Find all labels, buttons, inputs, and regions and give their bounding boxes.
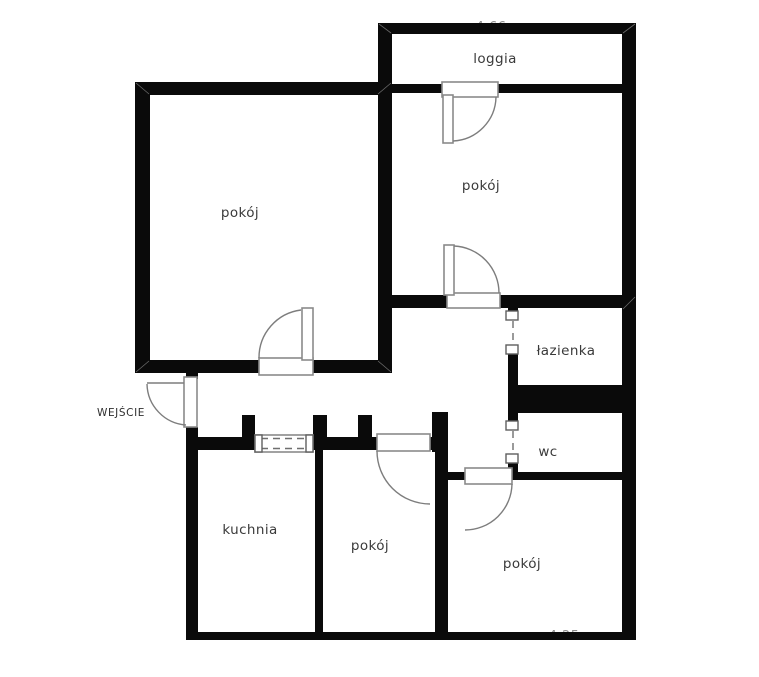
wall-loggia-bottom bbox=[392, 84, 622, 93]
door-arc bbox=[453, 97, 496, 141]
label-entrance: WEJŚCIE bbox=[97, 406, 145, 419]
room-labels: pokój pokój loggia łazienka wc kuchnia p… bbox=[97, 51, 595, 572]
kitchen-pass-window bbox=[255, 435, 313, 452]
floor-plan: 4.66 m 4.25 m bbox=[0, 0, 759, 677]
label-toilet: wc bbox=[538, 444, 557, 460]
door-opening bbox=[465, 468, 512, 484]
door-arc bbox=[454, 246, 499, 293]
label-room-bottom-middle: pokój bbox=[351, 538, 389, 554]
room-top-right-door bbox=[444, 245, 500, 308]
label-room-top-right: pokój bbox=[462, 178, 500, 194]
door-arc bbox=[259, 310, 301, 358]
label-room-top-left: pokój bbox=[221, 205, 259, 221]
door-arc bbox=[147, 384, 186, 425]
door-leaf bbox=[444, 245, 454, 295]
label-kitchen: kuchnia bbox=[222, 522, 277, 538]
door-leaf bbox=[302, 308, 313, 360]
wall-pier-3 bbox=[358, 415, 372, 439]
wall-roombr-top-a bbox=[435, 472, 465, 480]
wall-mid-horizontal bbox=[392, 295, 636, 308]
wall-shaft-band bbox=[508, 385, 622, 413]
door-cap bbox=[506, 421, 518, 430]
wall-pier-1 bbox=[242, 415, 255, 439]
door-leaf bbox=[443, 95, 453, 143]
door-arc bbox=[465, 484, 512, 530]
dimension-labels: 4.66 m 4.25 m bbox=[476, 20, 598, 644]
entrance-door bbox=[147, 377, 197, 427]
wall-room1-left bbox=[135, 82, 150, 373]
wall-room1-top bbox=[135, 82, 378, 95]
label-bathroom: łazienka bbox=[537, 343, 596, 359]
bathroom-door bbox=[506, 311, 518, 354]
door-opening bbox=[447, 293, 500, 308]
loggia-door bbox=[442, 82, 498, 143]
room-bottom-right-door bbox=[465, 468, 512, 530]
wall-kitchen-room-divider bbox=[315, 450, 323, 632]
door-cap bbox=[506, 454, 518, 463]
wall-pier-2 bbox=[313, 415, 327, 439]
wall-bottom-outer bbox=[188, 632, 636, 640]
wall-bath-left-b bbox=[508, 353, 518, 385]
wall-loggia-top bbox=[378, 23, 636, 34]
floor-plan-canvas: 4.66 m 4.25 m bbox=[0, 0, 759, 677]
wc-door bbox=[506, 421, 518, 463]
door-opening bbox=[184, 377, 197, 427]
wall-right-outer bbox=[622, 23, 636, 640]
room-bottom-middle-door bbox=[377, 434, 430, 504]
window-cap-right bbox=[306, 435, 313, 452]
wall-left-lower bbox=[186, 427, 198, 640]
wall-pier-4 bbox=[432, 412, 448, 452]
room-top-left-door bbox=[259, 308, 313, 375]
door-cap bbox=[506, 311, 518, 320]
wall-vertical-divider bbox=[378, 23, 392, 373]
door-cap bbox=[506, 345, 518, 354]
door-arc bbox=[377, 451, 430, 504]
wall-roombr-top-b bbox=[512, 472, 636, 480]
window-frame bbox=[255, 435, 313, 452]
door-opening bbox=[377, 434, 430, 451]
window-cap-left bbox=[255, 435, 262, 452]
label-room-bottom-right: pokój bbox=[503, 556, 541, 572]
label-loggia: loggia bbox=[473, 51, 517, 67]
